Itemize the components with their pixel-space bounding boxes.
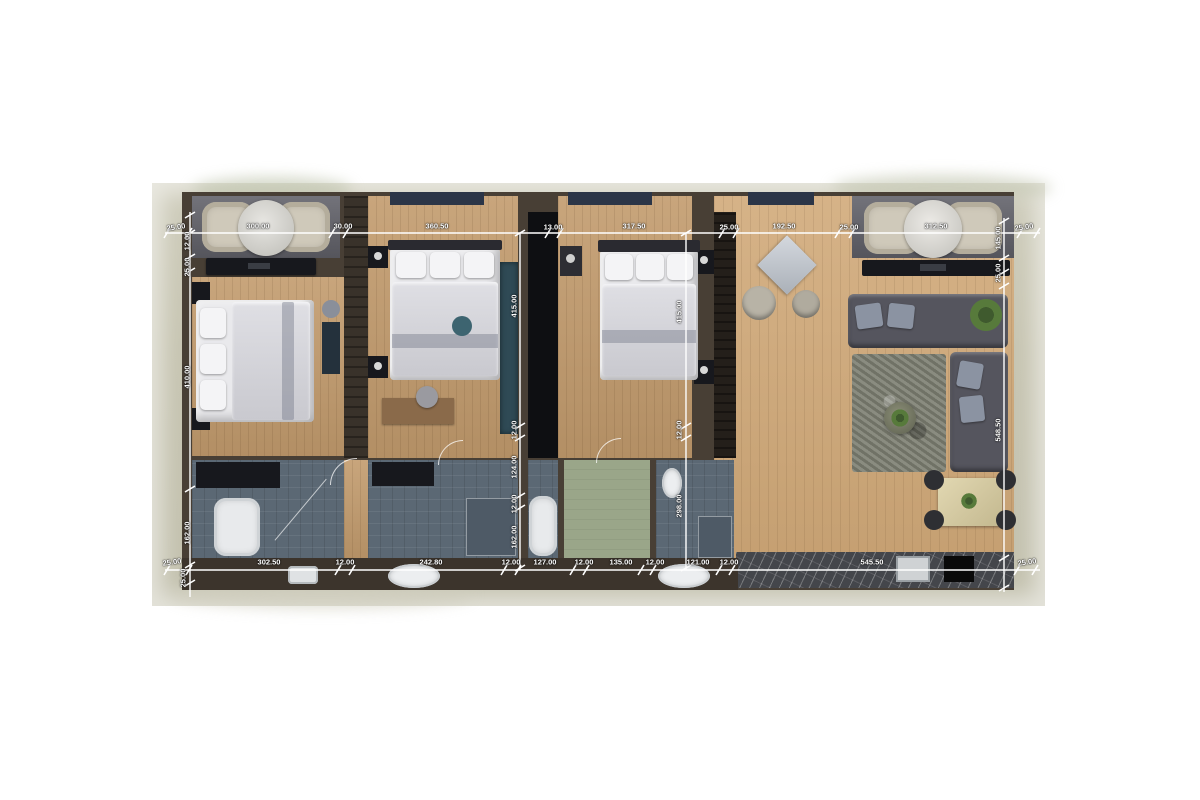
knob [566, 254, 575, 263]
bed [196, 300, 314, 422]
pillow [200, 344, 226, 374]
sofa-cushion [959, 395, 986, 423]
sofa [950, 352, 1008, 472]
dining-chair [924, 470, 944, 490]
bathroom-vanity [196, 462, 280, 488]
shower [466, 498, 516, 556]
toilet [662, 468, 682, 498]
plant [968, 296, 1004, 334]
duvet [232, 302, 310, 420]
closet [344, 196, 368, 458]
kitchen-sink [896, 556, 930, 582]
pillow [605, 254, 633, 280]
bathroom-vanity [372, 462, 434, 486]
window [748, 192, 814, 205]
knob [700, 256, 708, 264]
sofa-cushion [956, 360, 984, 390]
sink [288, 566, 318, 584]
bottom-wall [182, 558, 738, 590]
bathtub [658, 564, 710, 588]
bathtub [388, 564, 440, 588]
dresser [322, 322, 340, 374]
sofa-cushion [887, 303, 915, 330]
knob [374, 362, 382, 370]
dining-chair [996, 470, 1016, 490]
pillow [636, 254, 664, 280]
side-table [452, 316, 472, 336]
cooktop [944, 556, 974, 582]
tv-screen [920, 264, 946, 271]
wardrobe [500, 262, 518, 434]
bathtub [214, 498, 260, 556]
pillow [200, 308, 226, 338]
headboard [388, 240, 502, 250]
knob [700, 366, 708, 374]
bed [600, 250, 698, 380]
dining-chair [924, 510, 944, 530]
pillow [200, 380, 226, 410]
room-laundry [564, 460, 650, 560]
pillow [396, 252, 426, 278]
plant [890, 408, 910, 428]
desk-chair [416, 386, 438, 408]
stool [322, 300, 340, 318]
plant [960, 492, 978, 510]
pouf [792, 290, 820, 318]
headboard [598, 240, 700, 252]
bed [390, 248, 500, 380]
screenshot: 25.00300.0030.00360.5013.00317.5025.0019… [0, 0, 1200, 800]
window [568, 192, 652, 205]
blanket-fold [282, 302, 294, 420]
terrace-table [238, 200, 294, 256]
terrace-table [904, 200, 962, 258]
pillow [667, 254, 693, 280]
tv-screen [248, 263, 270, 269]
bathtub [529, 496, 557, 556]
duvet [392, 282, 498, 376]
blanket-fold [392, 334, 498, 348]
closet [528, 212, 558, 458]
knob [374, 252, 382, 260]
dining-chair [996, 510, 1016, 530]
closet [714, 212, 736, 458]
shower [698, 516, 732, 558]
pillow [464, 252, 494, 278]
blanket-fold [602, 330, 696, 343]
pillow [430, 252, 460, 278]
sofa-cushion [854, 302, 883, 329]
window [390, 192, 484, 205]
pouf [742, 286, 776, 320]
